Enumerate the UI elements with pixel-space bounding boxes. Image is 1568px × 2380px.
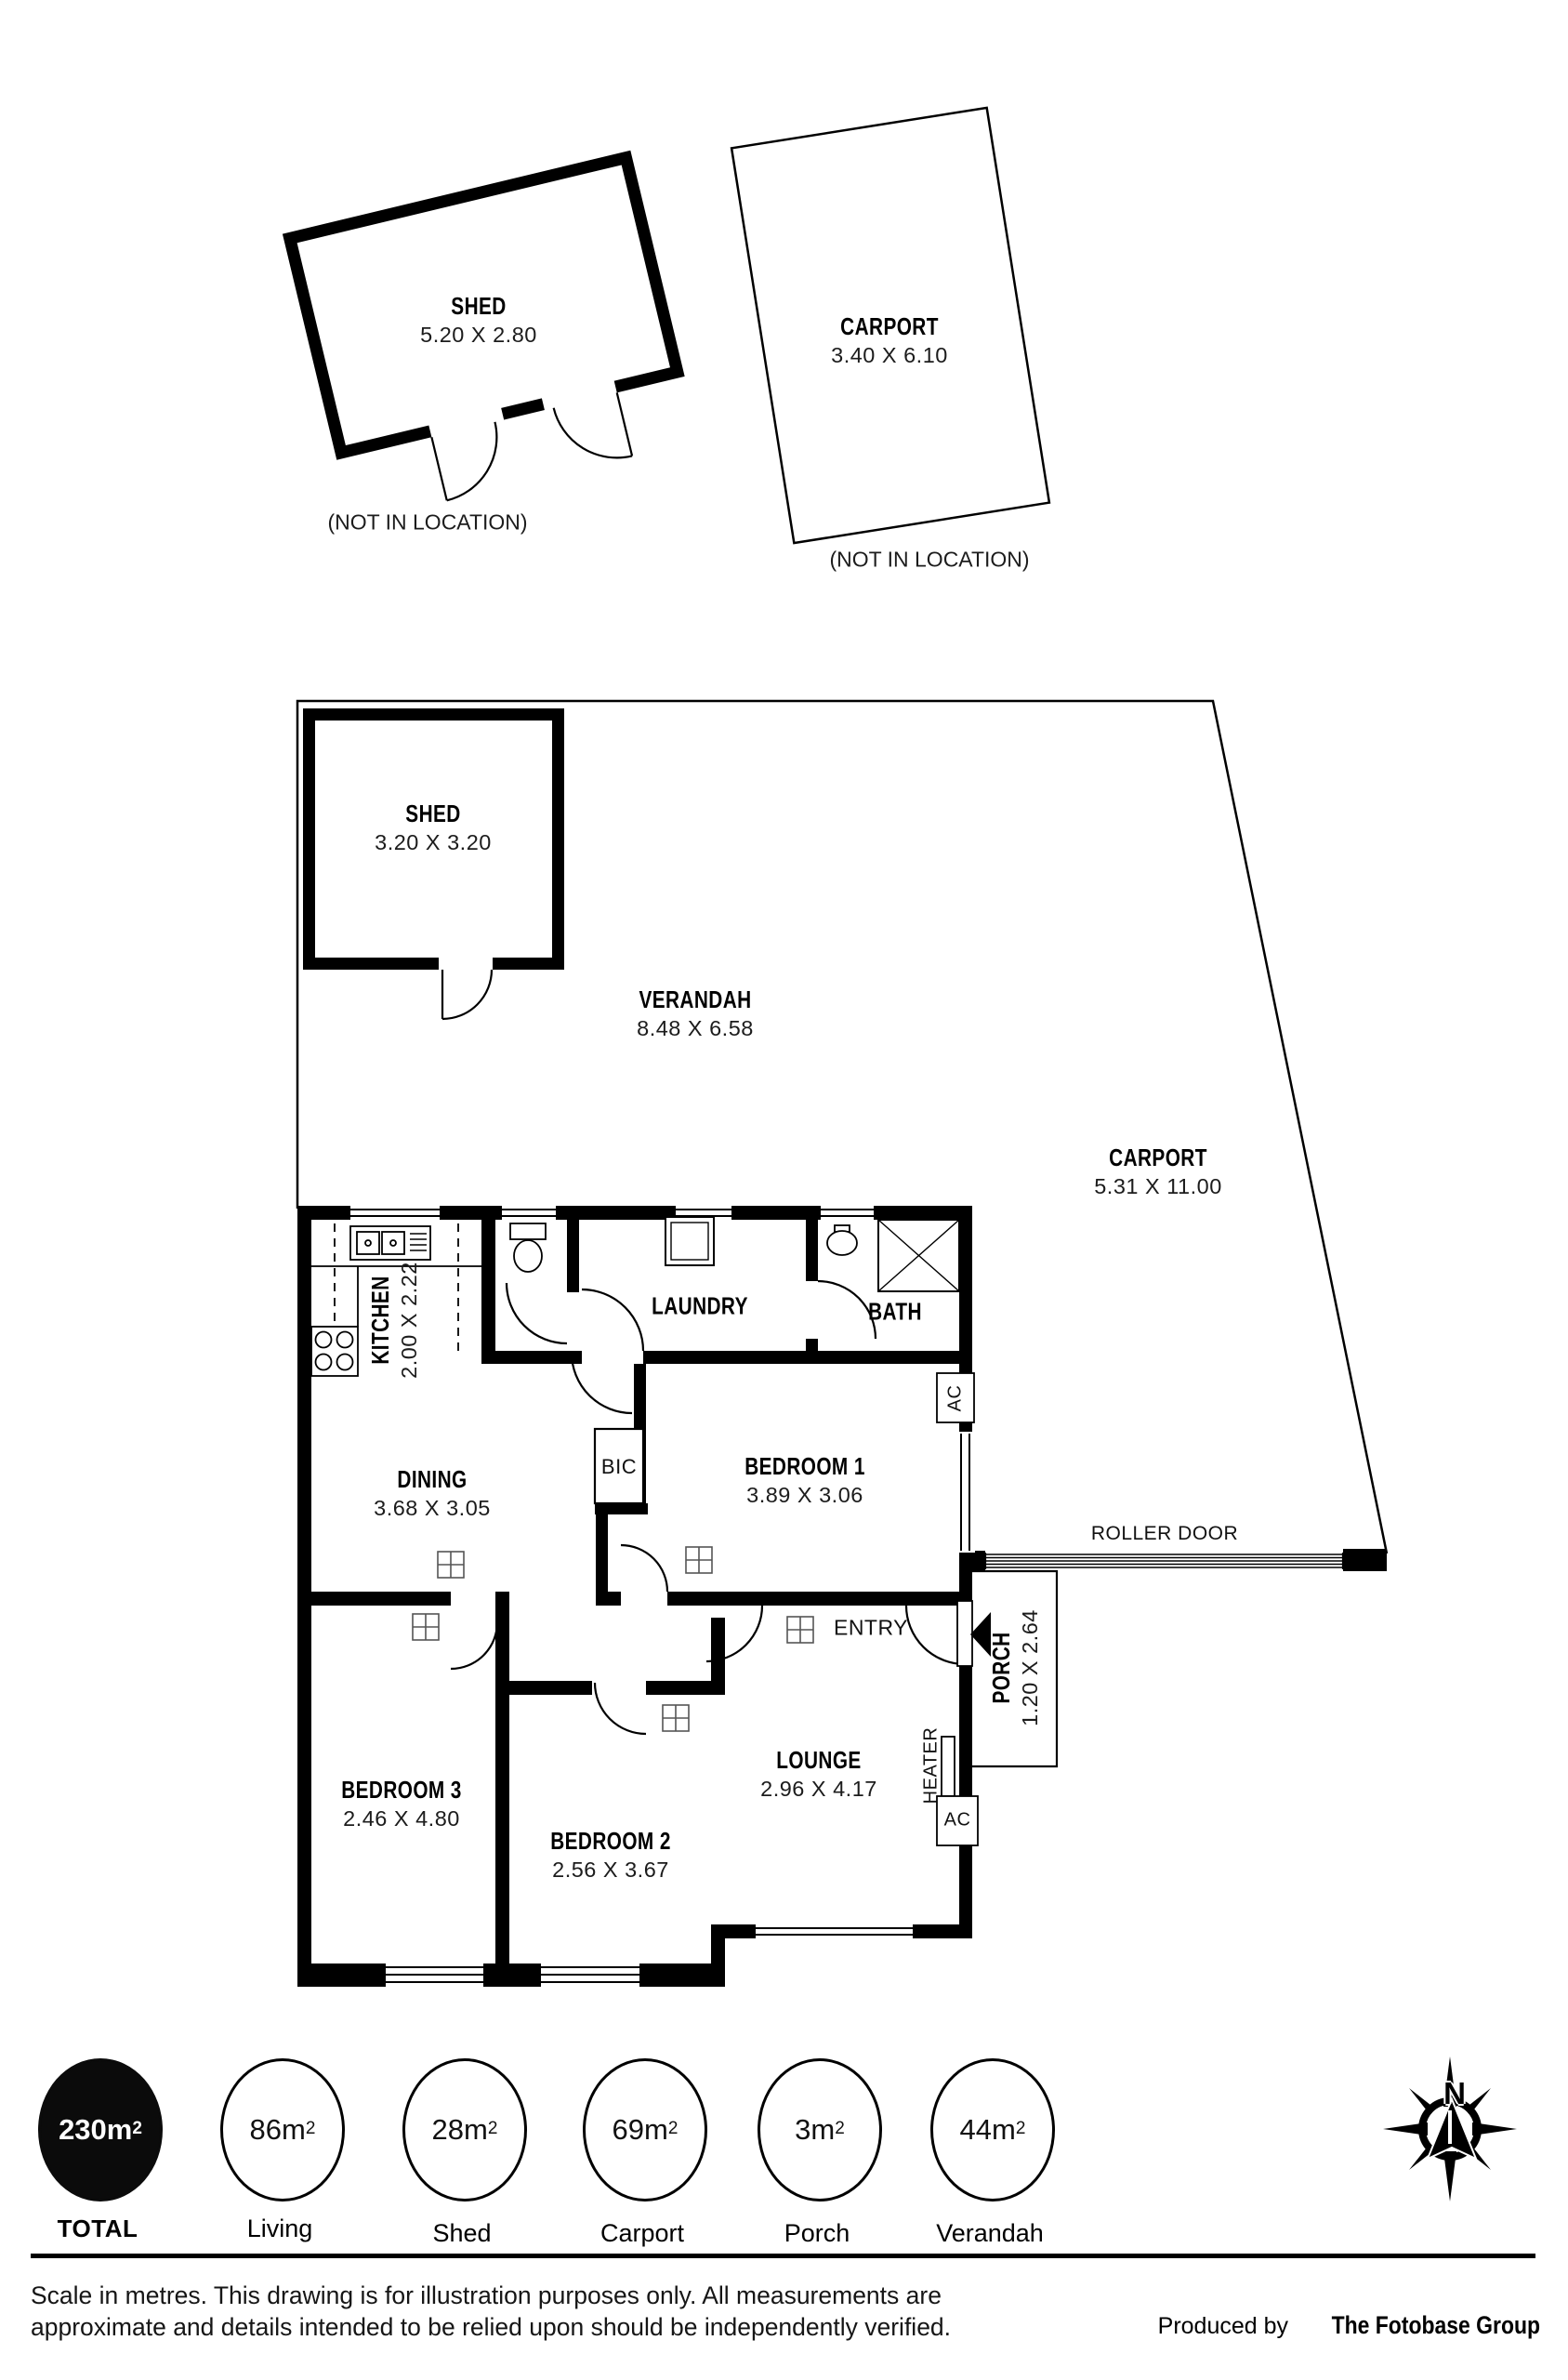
producer-credit: Produced by The Fotobase Group: [1158, 2311, 1540, 2340]
shed1-note: (NOT IN LOCATION): [327, 510, 527, 535]
heater-box: [942, 1737, 955, 1796]
kitchen-sink: [350, 1226, 430, 1260]
bath-label: BATH: [862, 1298, 929, 1327]
legend-shed-label: Shed: [432, 2219, 491, 2248]
bic-label: BIC: [601, 1455, 637, 1479]
heater-label: HEATER: [921, 1727, 942, 1805]
legend-total: 230m2: [38, 2058, 163, 2201]
door-arcs: [451, 1281, 965, 1734]
legend-living: 86m2: [220, 2058, 345, 2201]
legend-total-label: TOTAL: [58, 2215, 138, 2243]
shed-outline: [310, 715, 559, 1020]
shed2-label: SHED 3.20 X 3.20: [375, 800, 492, 855]
dining-label: DINING 3.68 X 3.05: [374, 1465, 491, 1521]
roller-door-label: ROLLER DOOR: [1091, 1523, 1238, 1545]
legend-carport-label: Carport: [600, 2219, 684, 2248]
disclaimer-text: Scale in metres. This drawing is for ill…: [31, 2280, 951, 2343]
pane-symbols: [413, 1547, 813, 1731]
compass-north-label: N: [1443, 2076, 1466, 2111]
porch-label: PORCH 1.20 X 2.64: [987, 1609, 1043, 1726]
lounge-label: LOUNGE 2.96 X 4.17: [760, 1746, 877, 1802]
legend-shed: 28m2: [402, 2058, 527, 2201]
floorplan-drawing: [0, 0, 1568, 2380]
bedroom1-label: BEDROOM 1 3.89 X 3.06: [730, 1452, 880, 1508]
verandah-label: VERANDAH 8.48 X 6.58: [625, 985, 765, 1041]
floorplan-page: SHED 5.20 X 2.80 (NOT IN LOCATION) CARPO…: [0, 0, 1568, 2380]
roller-door: [985, 1553, 1343, 1569]
footer-divider: [31, 2254, 1535, 2258]
bedroom3-label: BEDROOM 3 2.46 X 4.80: [326, 1776, 477, 1831]
legend-carport: 69m2: [583, 2058, 707, 2201]
laundry-trough-icon: [665, 1217, 714, 1265]
bedroom2-label: BEDROOM 2 2.56 X 3.67: [535, 1827, 686, 1883]
kitchen-label: KITCHEN 2.00 X 2.22: [366, 1262, 422, 1379]
legend-porch: 3m2: [758, 2058, 882, 2201]
stove-icon: [311, 1327, 358, 1376]
toilet-icon: [510, 1223, 546, 1272]
basin-icon: [827, 1225, 857, 1255]
laundry-label: LAUNDRY: [639, 1292, 760, 1321]
ac-label-bed1: AC: [945, 1385, 967, 1412]
legend-verandah: 44m2: [930, 2058, 1055, 2201]
entry-label: ENTRY: [834, 1616, 908, 1641]
shower-icon: [878, 1220, 959, 1291]
legend-verandah-label: Verandah: [936, 2219, 1044, 2248]
legend-living-label: Living: [247, 2215, 313, 2243]
carport1-note: (NOT IN LOCATION): [829, 548, 1029, 573]
carport1-label: CARPORT 3.40 X 6.10: [828, 312, 951, 368]
house-walls: [297, 1206, 1387, 1987]
legend-porch-label: Porch: [784, 2219, 850, 2248]
carport2-label: CARPORT 5.31 X 11.00: [1094, 1144, 1222, 1199]
shed1-label: SHED 5.20 X 2.80: [420, 292, 537, 348]
entry-door: [957, 1601, 991, 1666]
ac-label-lounge: AC: [944, 1810, 971, 1831]
